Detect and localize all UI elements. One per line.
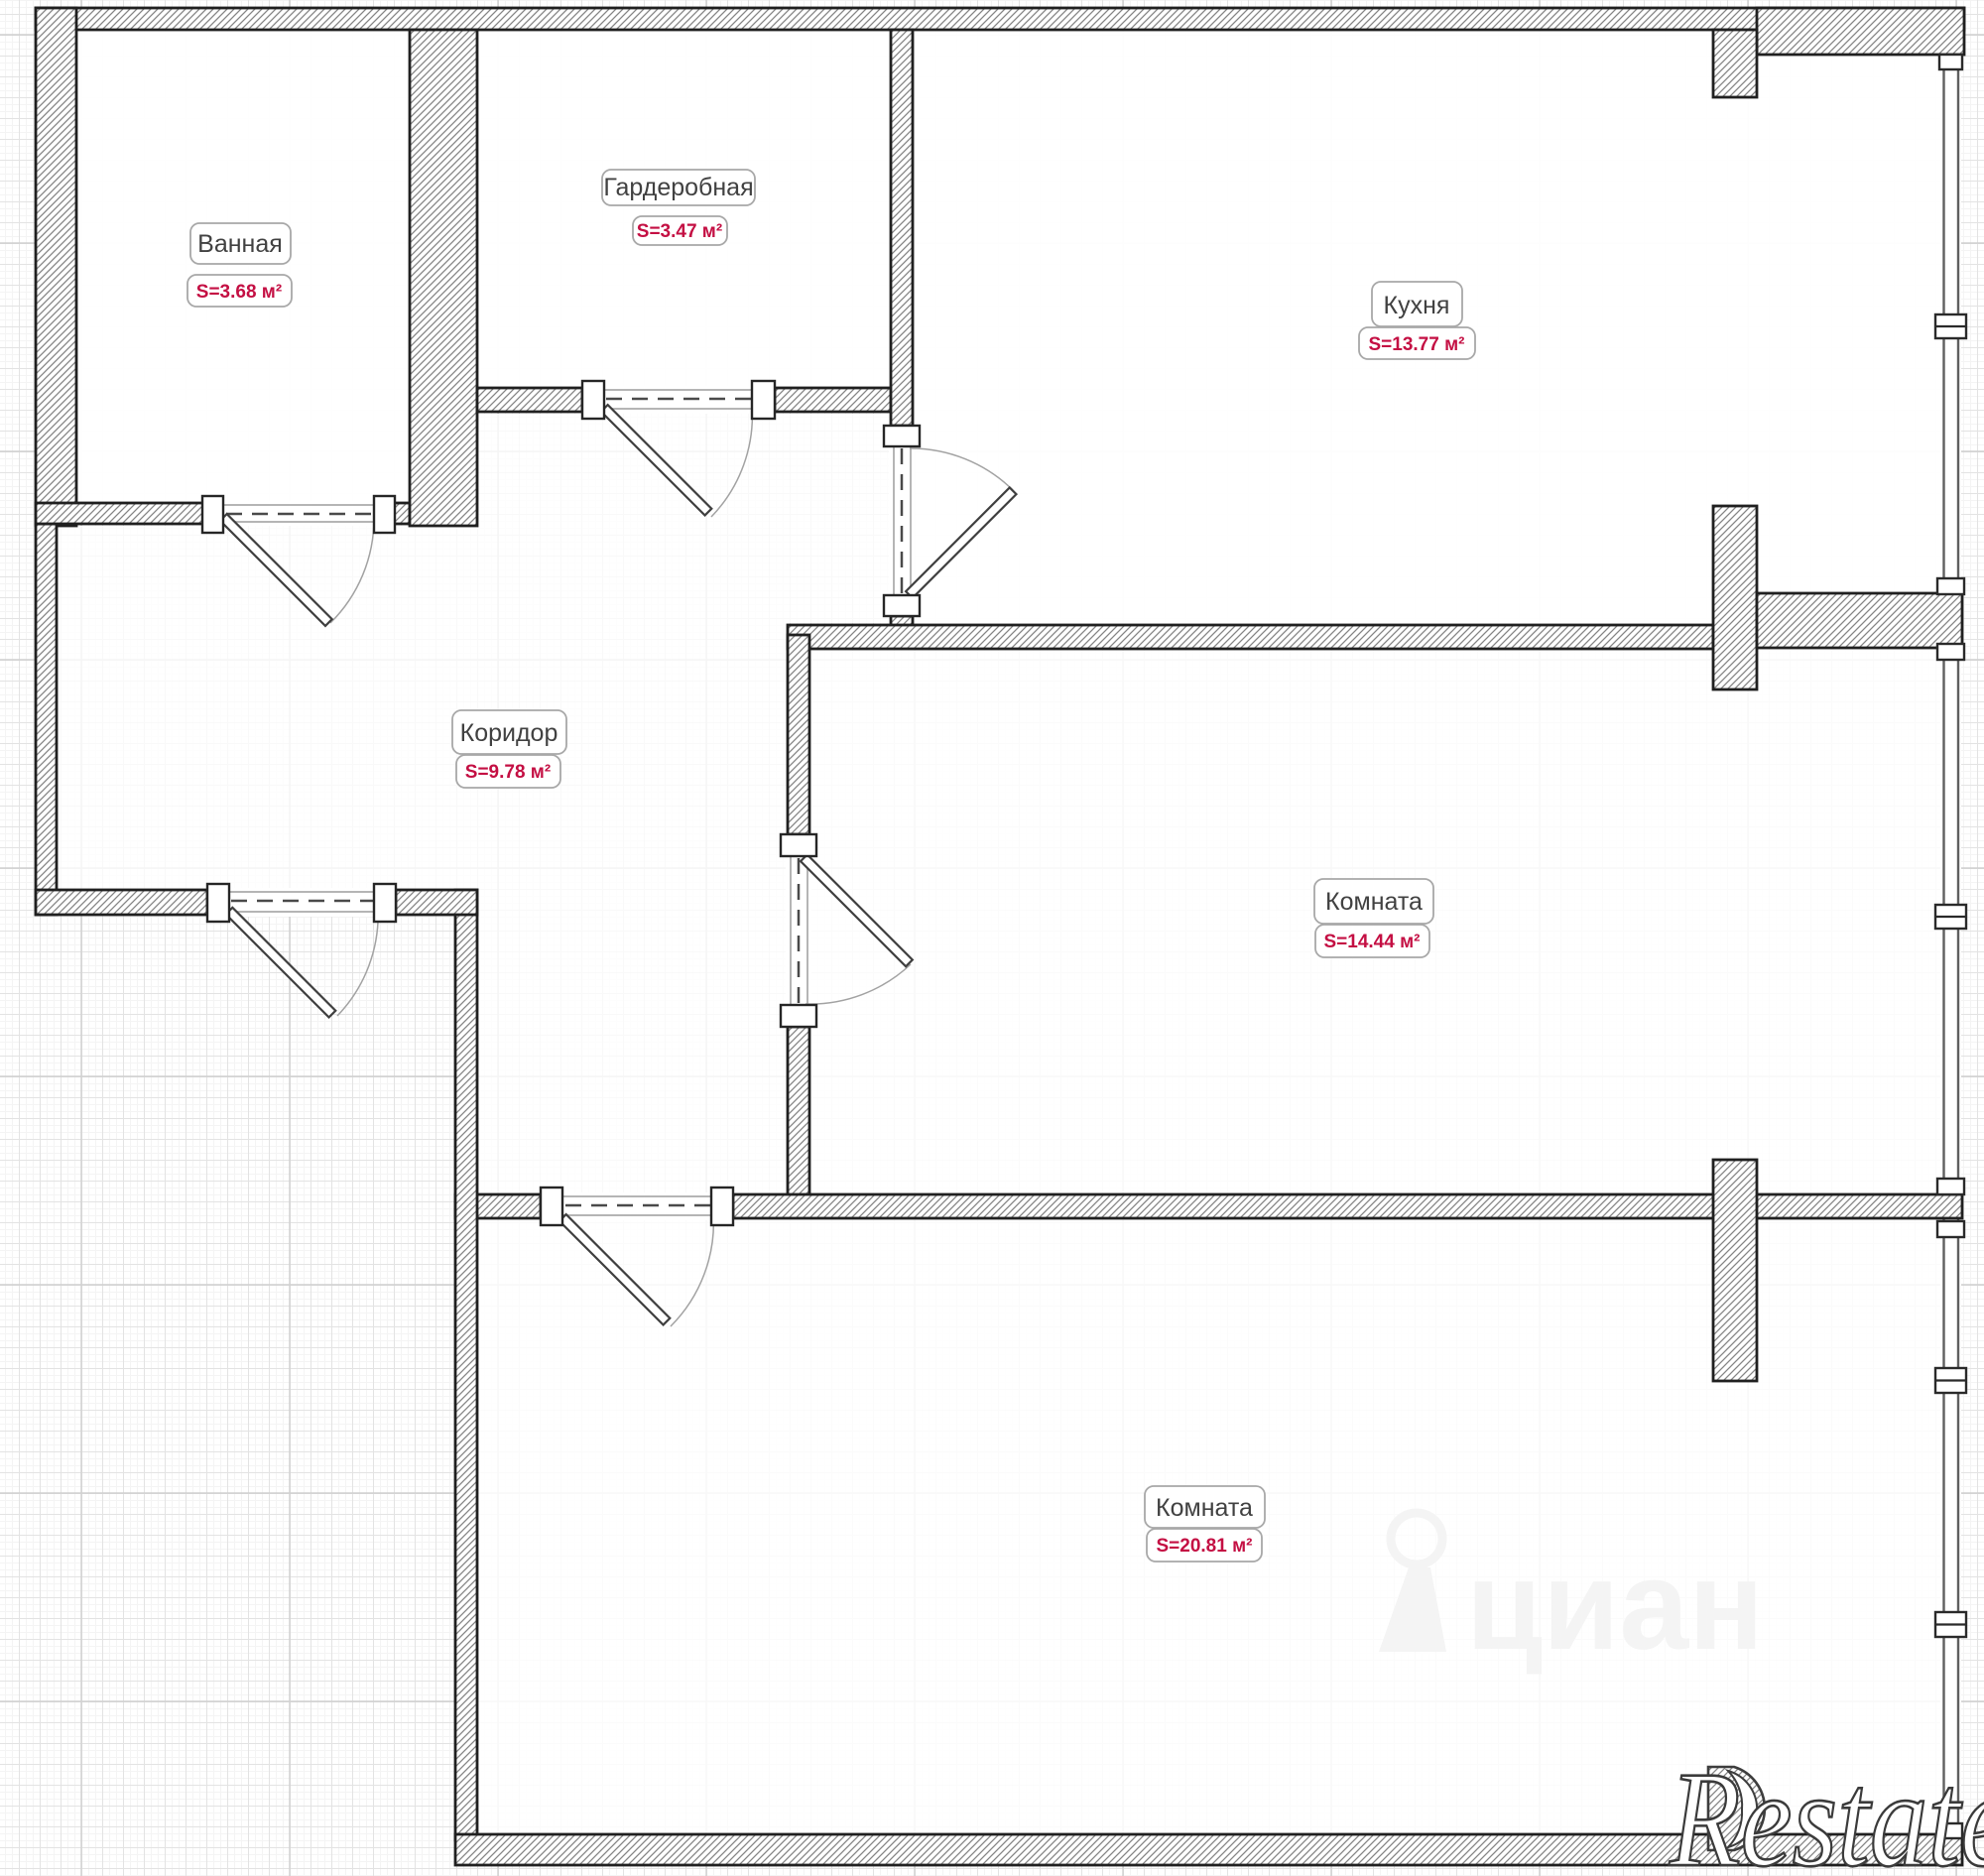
svg-text:Комната: Комната [1325,888,1423,916]
svg-text:Гардеробная: Гардеробная [603,174,753,201]
svg-text:Комната: Комната [1156,1494,1253,1522]
svg-text:циан: циан [1466,1535,1764,1677]
svg-text:Кухня: Кухня [1384,292,1450,319]
svg-text:S=13.77 м²: S=13.77 м² [1369,334,1465,355]
svg-text:S=20.81 м²: S=20.81 м² [1157,1536,1253,1557]
svg-text:Коридор: Коридор [460,719,558,747]
svg-text:Ванная: Ванная [197,230,283,258]
svg-text:S=9.78 м²: S=9.78 м² [465,762,551,783]
svg-text:S=3.47 м²: S=3.47 м² [637,221,722,242]
svg-text:Restate: Restate [1669,1743,1984,1876]
svg-text:S=14.44 м²: S=14.44 м² [1324,932,1421,952]
svg-text:S=3.68 м²: S=3.68 м² [196,282,282,303]
